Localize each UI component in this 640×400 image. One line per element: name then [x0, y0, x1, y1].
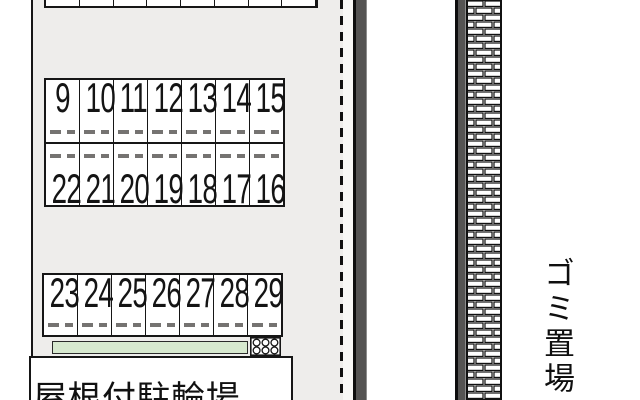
wheel-stop-dashes	[152, 154, 177, 158]
garbage-area-label: ゴミ置場	[541, 257, 572, 397]
parking-spot: 28	[214, 275, 248, 335]
spot-number: 22	[52, 168, 74, 210]
parking-spot: 11	[114, 80, 148, 142]
wheel-stop-dashes	[218, 323, 243, 327]
wheel-stop-dashes	[118, 154, 143, 158]
parking-spot: 26	[146, 275, 180, 335]
spot-number: 19	[154, 168, 176, 210]
parking-spot	[114, 0, 148, 6]
parking-spot	[80, 0, 114, 6]
wheel-stop-dashes	[84, 130, 109, 134]
boundary-dashed-line	[340, 0, 343, 400]
wheel-stop-dashes	[254, 154, 279, 158]
wheel-stop-dashes	[118, 130, 143, 134]
parking-row: 9101112131415	[46, 80, 283, 144]
parking-spot	[249, 0, 283, 6]
parking-spot: 23	[44, 275, 78, 335]
parking-spot	[46, 0, 80, 6]
parking-row	[46, 0, 316, 6]
spot-number: 26	[152, 272, 174, 314]
parking-spot: 21	[80, 144, 114, 206]
parking-block-top-partial	[44, 0, 318, 8]
spot-number: 25	[118, 272, 140, 314]
spot-number: 29	[254, 272, 276, 314]
wheel-stop-dashes	[82, 323, 107, 327]
spot-number: 12	[154, 77, 176, 119]
parking-spot	[147, 0, 181, 6]
wheel-stop-dashes	[84, 154, 109, 158]
wheel-stop-dashes	[186, 130, 211, 134]
parking-spot: 15	[250, 80, 283, 142]
wheel-stop-dashes	[252, 323, 277, 327]
spot-number: 13	[188, 77, 210, 119]
parking-spot: 24	[78, 275, 112, 335]
parking-block-middle: 9101112131415 22212019181716	[44, 78, 285, 207]
meter-box-icon	[250, 337, 281, 356]
site-plan: 9101112131415 22212019181716 23242526272…	[0, 0, 640, 400]
parking-spot: 17	[216, 144, 250, 206]
wheel-stop-dashes	[220, 130, 245, 134]
spot-number: 28	[220, 272, 242, 314]
parking-row: 23242526272829	[44, 275, 281, 335]
parking-spot: 27	[180, 275, 214, 335]
spot-number: 11	[120, 77, 142, 119]
wheel-stop-dashes	[220, 154, 245, 158]
spot-number: 16	[256, 168, 278, 210]
spot-number: 23	[50, 272, 72, 314]
parking-spot: 29	[248, 275, 281, 335]
outer-wall	[455, 0, 466, 400]
spot-number: 14	[222, 77, 244, 119]
parking-spot: 19	[148, 144, 182, 206]
parking-spot: 18	[182, 144, 216, 206]
wheel-stop-dashes	[254, 130, 279, 134]
wheel-stop-dashes	[48, 323, 73, 327]
inner-wall	[353, 0, 367, 400]
spot-number: 18	[188, 168, 210, 210]
parking-spot	[215, 0, 249, 6]
parking-spot: 20	[114, 144, 148, 206]
parking-spot: 10	[80, 80, 114, 142]
parking-block-bottom: 23242526272829	[42, 273, 283, 337]
spot-number: 27	[186, 272, 208, 314]
spot-number: 15	[256, 77, 278, 119]
parking-spot: 13	[182, 80, 216, 142]
wheel-stop-dashes	[150, 323, 175, 327]
bicycle-parking-building: 屋根付駐輪場	[29, 356, 293, 400]
wheel-stop-dashes	[184, 323, 209, 327]
wheel-stop-dashes	[50, 154, 75, 158]
parking-spot: 16	[250, 144, 283, 206]
spot-number: 9	[52, 77, 74, 119]
parking-spot: 22	[46, 144, 80, 206]
parking-row: 22212019181716	[46, 144, 283, 206]
bicycle-parking-label: 屋根付駐輪場	[33, 382, 240, 400]
parking-spot: 12	[148, 80, 182, 142]
spot-number: 21	[86, 168, 108, 210]
parking-spot: 25	[112, 275, 146, 335]
wheel-stop-dashes	[152, 130, 177, 134]
brick-wall	[466, 0, 502, 400]
spot-number: 24	[84, 272, 106, 314]
wheel-stop-dashes	[116, 323, 141, 327]
bicycle-parking-strip	[52, 341, 248, 354]
wheel-stop-dashes	[186, 154, 211, 158]
parking-spot: 9	[46, 80, 80, 142]
parking-spot	[282, 0, 316, 6]
parking-spot	[181, 0, 215, 6]
spot-number: 17	[222, 168, 244, 210]
spot-number: 20	[120, 168, 142, 210]
parking-spot: 14	[216, 80, 250, 142]
wheel-stop-dashes	[50, 130, 75, 134]
spot-number: 10	[86, 77, 108, 119]
